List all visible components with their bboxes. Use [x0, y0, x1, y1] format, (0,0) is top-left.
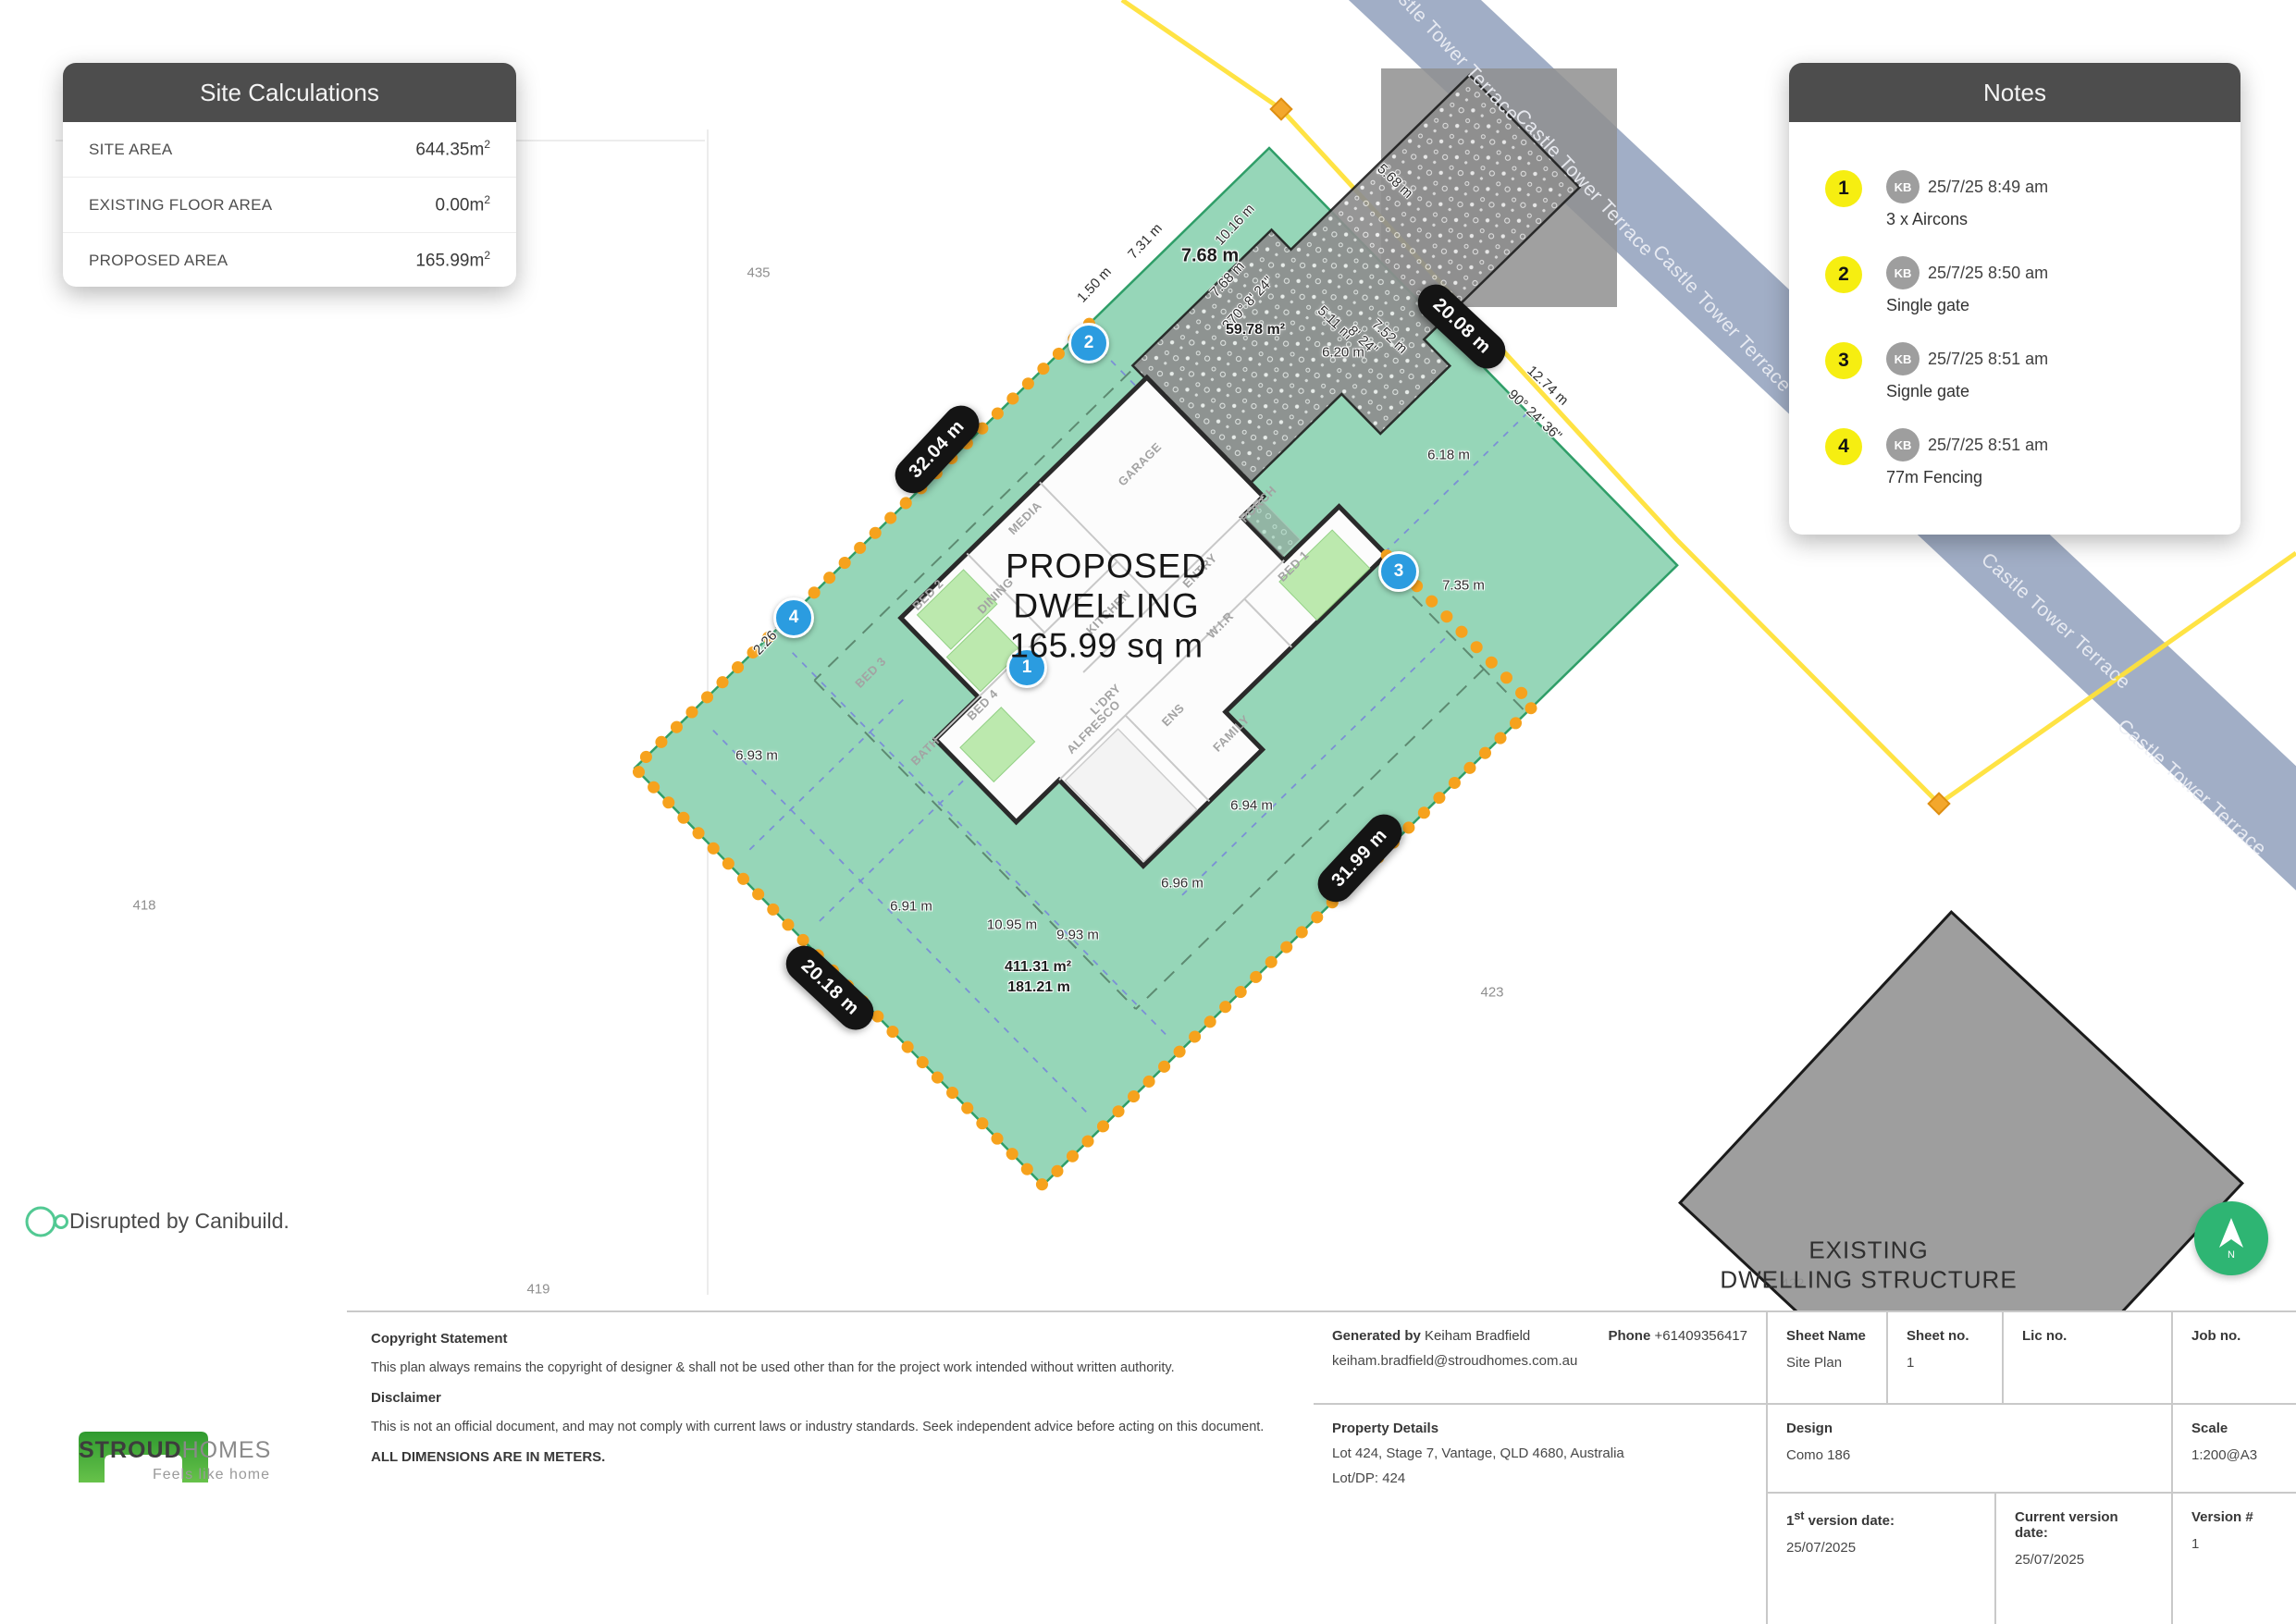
canibuild-icon: [27, 1208, 68, 1236]
note-author-avatar: KB: [1886, 428, 1920, 461]
version-number-value: 1: [2191, 1536, 2277, 1552]
note-number-badge[interactable]: 1: [1825, 170, 1862, 207]
dwelling-label-line1: PROPOSED: [1006, 547, 1207, 587]
note-text: 3 x Aircons: [1886, 210, 2222, 229]
proposed-dwelling-label: PROPOSED DWELLING 165.99 sq m: [1006, 547, 1207, 667]
sheet-no-label: Sheet no.: [1907, 1328, 1983, 1344]
note-timestamp: 25/7/25 8:51 am: [1928, 436, 2048, 455]
calc-row-value: 0.00m2: [436, 193, 491, 215]
disclaimer-heading: Disclaimer: [371, 1390, 1290, 1406]
note-number-badge[interactable]: 3: [1825, 342, 1862, 379]
canibuild-credit: Disrupted by Canibuild.: [69, 1209, 290, 1234]
property-details-line1: Lot 424, Stage 7, Vantage, QLD 4680, Aus…: [1332, 1446, 1747, 1461]
version-number-cell: Version # 1: [2171, 1492, 2296, 1624]
current-version-label: Current version date:: [2015, 1509, 2153, 1541]
design-cell: Design Como 186: [1766, 1403, 2171, 1492]
stroud-logo-text-1: STROUD: [79, 1437, 182, 1463]
site-calculations-panel: Site Calculations SITE AREA644.35m2EXIST…: [63, 63, 516, 287]
scale-label: Scale: [2191, 1421, 2277, 1436]
site-calculation-row: EXISTING FLOOR AREA0.00m2: [63, 177, 516, 232]
lic-no-label: Lic no.: [2022, 1328, 2153, 1344]
note-item[interactable]: 3KB25/7/25 8:51 amSignle gate: [1789, 342, 2222, 409]
site-calculations-rows: SITE AREA644.35m2EXISTING FLOOR AREA0.00…: [63, 122, 516, 287]
copyright-cell: Copyright Statement This plan always rem…: [347, 1312, 1314, 1624]
note-text: 77m Fencing: [1886, 468, 2222, 487]
notes-panel: Notes 1KB25/7/25 8:49 am3 x Aircons2KB25…: [1789, 63, 2240, 535]
north-arrow-icon: [2212, 1216, 2251, 1253]
copyright-heading: Copyright Statement: [371, 1331, 1290, 1347]
parcel-grid-lines: [56, 129, 708, 1295]
scale-value: 1:200@A3: [2191, 1447, 2277, 1463]
dwelling-label-line3: 165.99 sq m: [1006, 626, 1207, 666]
current-version-date: 25/07/2025: [2015, 1552, 2153, 1568]
note-text: Single gate: [1886, 296, 2222, 315]
note-author-avatar: KB: [1886, 256, 1920, 289]
first-version-cell: 1st version date: 25/07/2025: [1766, 1492, 1994, 1624]
note-number-badge[interactable]: 2: [1825, 256, 1862, 293]
stroud-tagline: Feels like home: [79, 1467, 270, 1483]
stroud-logo-text-2: HOMES: [182, 1437, 272, 1463]
generated-by-label: Generated by: [1332, 1328, 1421, 1344]
note-author-avatar: KB: [1886, 170, 1920, 203]
calc-row-value: 165.99m2: [415, 249, 490, 271]
sheet-no-cell: Sheet no. 1: [1886, 1312, 2002, 1403]
first-version-date: 25/07/2025: [1786, 1540, 1976, 1556]
dwelling-label-line2: DWELLING: [1006, 587, 1207, 627]
property-details-label: Property Details: [1332, 1421, 1747, 1436]
note-marker-2[interactable]: 2: [1068, 323, 1109, 363]
note-item[interactable]: 2KB25/7/25 8:50 amSingle gate: [1789, 256, 2222, 323]
sheet-name-value: Site Plan: [1786, 1355, 1868, 1371]
property-details-cell: Property Details Lot 424, Stage 7, Vanta…: [1314, 1403, 1766, 1624]
calc-row-label: SITE AREA: [89, 141, 173, 159]
site-calculation-row: SITE AREA644.35m2: [63, 122, 516, 177]
note-timestamp: 25/7/25 8:49 am: [1928, 178, 2048, 197]
dimensions-note: ALL DIMENSIONS ARE IN METERS.: [371, 1449, 1290, 1465]
phone-label: Phone: [1608, 1328, 1650, 1344]
note-timestamp: 25/7/25 8:51 am: [1928, 350, 2048, 369]
calc-row-label: PROPOSED AREA: [89, 252, 228, 270]
note-timestamp: 25/7/25 8:50 am: [1928, 264, 2048, 283]
calc-row-label: EXISTING FLOOR AREA: [89, 196, 272, 215]
current-version-cell: Current version date: 25/07/2025: [1994, 1492, 2171, 1624]
site-calculation-row: PROPOSED AREA165.99m2: [63, 232, 516, 287]
note-item[interactable]: 4KB25/7/25 8:51 am77m Fencing: [1789, 428, 2222, 495]
note-text: Signle gate: [1886, 382, 2222, 401]
design-label: Design: [1786, 1421, 2153, 1436]
generated-by-email: keiham.bradfield@stroudhomes.com.au: [1332, 1353, 1747, 1369]
copyright-body: This plan always remains the copyright o…: [371, 1360, 1290, 1375]
compass-n-label: N: [2228, 1249, 2235, 1261]
first-version-label: 1st version date:: [1786, 1509, 1976, 1529]
generated-by-name: Keiham Bradfield: [1425, 1328, 1530, 1344]
generated-by-cell: Generated by Keiham Bradfield Phone +614…: [1314, 1312, 1766, 1403]
lic-no-cell: Lic no.: [2002, 1312, 2171, 1403]
calc-row-value: 644.35m2: [415, 138, 490, 160]
job-no-label: Job no.: [2191, 1328, 2277, 1344]
sheet-name-cell: Sheet Name Site Plan: [1766, 1312, 1886, 1403]
north-compass: N: [2194, 1201, 2268, 1275]
sheet-no-value: 1: [1907, 1355, 1983, 1371]
job-no-cell: Job no.: [2171, 1312, 2296, 1403]
note-marker-3[interactable]: 3: [1378, 551, 1419, 592]
property-details-line2: Lot/DP: 424: [1332, 1470, 1747, 1486]
phone-value: +61409356417: [1654, 1328, 1747, 1344]
stroudhomes-logo: STROUDHOMES Feels like home: [79, 1432, 301, 1483]
design-value: Como 186: [1786, 1447, 2153, 1463]
sheet-name-label: Sheet Name: [1786, 1328, 1868, 1344]
scale-cell: Scale 1:200@A3: [2171, 1403, 2296, 1492]
note-number-badge[interactable]: 4: [1825, 428, 1862, 465]
site-calculations-title: Site Calculations: [63, 63, 516, 122]
version-number-label: Version #: [2191, 1509, 2277, 1525]
title-block: Copyright Statement This plan always rem…: [347, 1310, 2296, 1624]
notes-list: 1KB25/7/25 8:49 am3 x Aircons2KB25/7/25 …: [1789, 122, 2240, 495]
notes-title: Notes: [1789, 63, 2240, 122]
disclaimer-body: This is not an official document, and ma…: [371, 1420, 1290, 1434]
note-marker-4[interactable]: 4: [773, 597, 814, 638]
note-author-avatar: KB: [1886, 342, 1920, 375]
note-item[interactable]: 1KB25/7/25 8:49 am3 x Aircons: [1789, 170, 2222, 237]
